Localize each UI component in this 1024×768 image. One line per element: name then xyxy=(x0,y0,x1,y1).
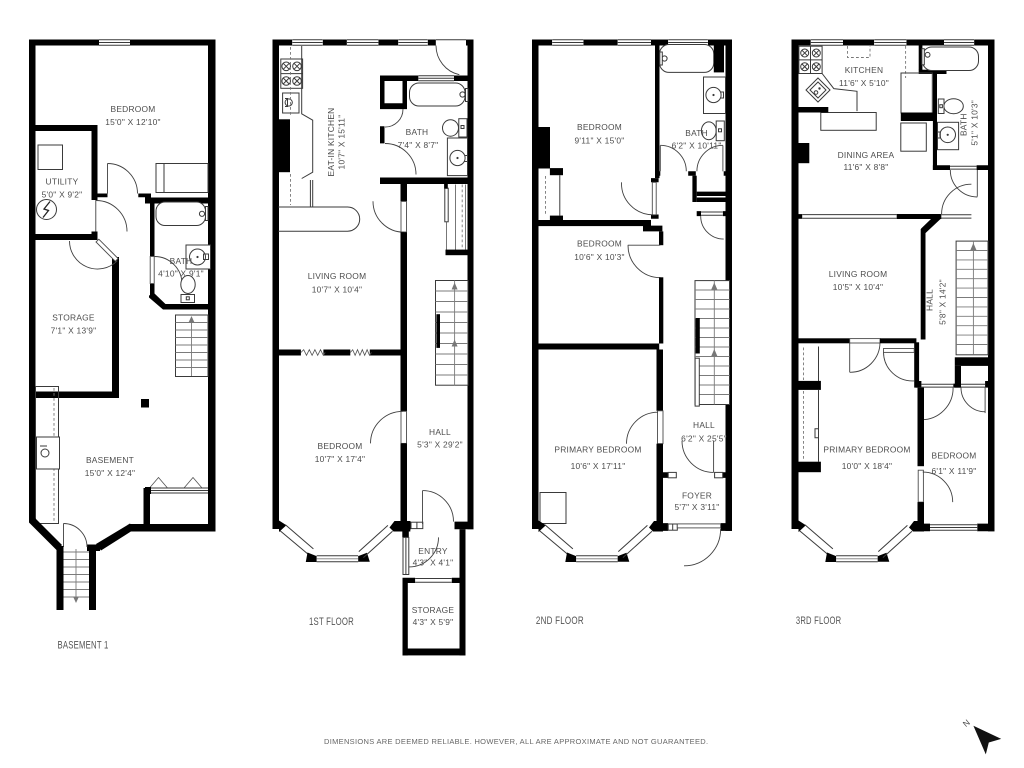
svg-text:BEDROOM: BEDROOM xyxy=(577,122,622,132)
svg-text:4'3" X 5'9": 4'3" X 5'9" xyxy=(413,617,454,627)
svg-text:BASEMENT 1: BASEMENT 1 xyxy=(58,640,109,652)
svg-text:6'2" X 25'5": 6'2" X 25'5" xyxy=(681,434,727,444)
svg-text:EAT-IN KITCHEN: EAT-IN KITCHEN xyxy=(326,108,336,177)
svg-text:15'0" X 12'10": 15'0" X 12'10" xyxy=(105,117,161,127)
svg-text:6'2" X 10'11": 6'2" X 10'11" xyxy=(672,141,722,151)
svg-text:15'0" X 12'4": 15'0" X 12'4" xyxy=(85,468,136,478)
svg-text:4'3" X 4'1": 4'3" X 4'1" xyxy=(413,558,454,568)
svg-text:BATH: BATH xyxy=(959,113,969,136)
svg-text:11'6" X 5'10": 11'6" X 5'10" xyxy=(839,78,889,88)
svg-text:HALL: HALL xyxy=(925,289,935,311)
svg-text:BASEMENT: BASEMENT xyxy=(86,455,134,465)
svg-text:ENTRY: ENTRY xyxy=(418,546,448,556)
svg-text:5'0" X 9'2": 5'0" X 9'2" xyxy=(42,190,83,200)
svg-text:UTILITY: UTILITY xyxy=(46,177,79,187)
svg-text:10'7" X 10'4": 10'7" X 10'4" xyxy=(312,285,363,295)
svg-text:BEDROOM: BEDROOM xyxy=(577,239,622,249)
svg-text:DINING AREA: DINING AREA xyxy=(838,150,895,160)
svg-text:3RD FLOOR: 3RD FLOOR xyxy=(796,615,842,627)
svg-text:1ST FLOOR: 1ST FLOOR xyxy=(309,616,354,628)
svg-text:10'6" X 10'3": 10'6" X 10'3" xyxy=(574,252,625,262)
svg-text:PRIMARY BEDROOM: PRIMARY BEDROOM xyxy=(823,445,910,455)
svg-text:BEDROOM: BEDROOM xyxy=(931,451,976,461)
svg-text:LIVING ROOM: LIVING ROOM xyxy=(308,271,367,281)
svg-text:BEDROOM: BEDROOM xyxy=(317,441,362,451)
svg-text:PRIMARY BEDROOM: PRIMARY BEDROOM xyxy=(554,445,641,455)
svg-text:5'3" X 29'2": 5'3" X 29'2" xyxy=(417,440,463,450)
svg-text:11'6" X 8'8": 11'6" X 8'8" xyxy=(843,162,888,172)
svg-text:HALL: HALL xyxy=(693,420,715,430)
svg-text:BATH: BATH xyxy=(406,127,429,137)
svg-text:5'7" X 3'11": 5'7" X 3'11" xyxy=(674,502,719,512)
svg-text:STORAGE: STORAGE xyxy=(412,605,455,615)
svg-text:6'1" X 11'9": 6'1" X 11'9" xyxy=(931,466,976,476)
svg-text:10'7" X 15'11": 10'7" X 15'11" xyxy=(337,115,347,170)
svg-text:BEDROOM: BEDROOM xyxy=(110,104,155,114)
svg-text:10'7" X 17'4": 10'7" X 17'4" xyxy=(315,454,366,464)
svg-text:10'0" X 18'4": 10'0" X 18'4" xyxy=(842,461,893,471)
svg-text:DIMENSIONS ARE DEEMED RELIABLE: DIMENSIONS ARE DEEMED RELIABLE. HOWEVER,… xyxy=(324,737,708,746)
svg-text:HALL: HALL xyxy=(429,427,451,437)
svg-text:7'1" X 13'9": 7'1" X 13'9" xyxy=(51,326,97,336)
svg-text:BATH: BATH xyxy=(170,256,193,266)
svg-text:5'8" X 14'2": 5'8" X 14'2" xyxy=(938,279,948,325)
svg-text:FOYER: FOYER xyxy=(682,491,712,501)
svg-text:5'1" X 10'3": 5'1" X 10'3" xyxy=(970,100,980,146)
svg-text:10'6" X 17'11": 10'6" X 17'11" xyxy=(571,461,626,471)
svg-text:4'10" X 9'1": 4'10" X 9'1" xyxy=(158,269,204,279)
svg-text:2ND FLOOR: 2ND FLOOR xyxy=(536,615,584,627)
svg-text:BATH: BATH xyxy=(685,128,708,138)
svg-text:LIVING ROOM: LIVING ROOM xyxy=(829,269,888,279)
svg-text:7'4" X 8'7": 7'4" X 8'7" xyxy=(398,140,439,150)
svg-text:10'5" X 10'4": 10'5" X 10'4" xyxy=(833,282,884,292)
svg-text:STORAGE: STORAGE xyxy=(52,313,95,323)
svg-text:9'11" X 15'0": 9'11" X 15'0" xyxy=(575,136,625,146)
svg-text:KITCHEN: KITCHEN xyxy=(845,65,884,75)
